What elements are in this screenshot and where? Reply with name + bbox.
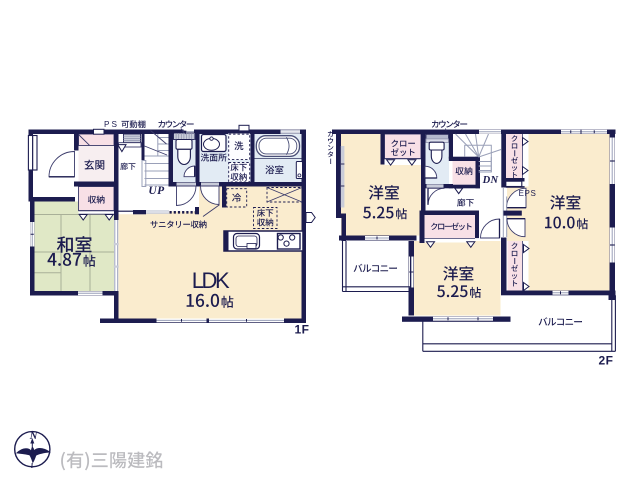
svg-text:DN: DN <box>482 175 499 186</box>
svg-text:P S: P S <box>104 120 118 129</box>
svg-text:EPS: EPS <box>519 189 537 198</box>
svg-text:N: N <box>29 431 38 442</box>
svg-text:UP: UP <box>148 185 165 197</box>
svg-text:1F: 1F <box>294 323 309 337</box>
svg-text:2F: 2F <box>598 354 613 368</box>
svg-text:LDK: LDK <box>192 268 230 293</box>
